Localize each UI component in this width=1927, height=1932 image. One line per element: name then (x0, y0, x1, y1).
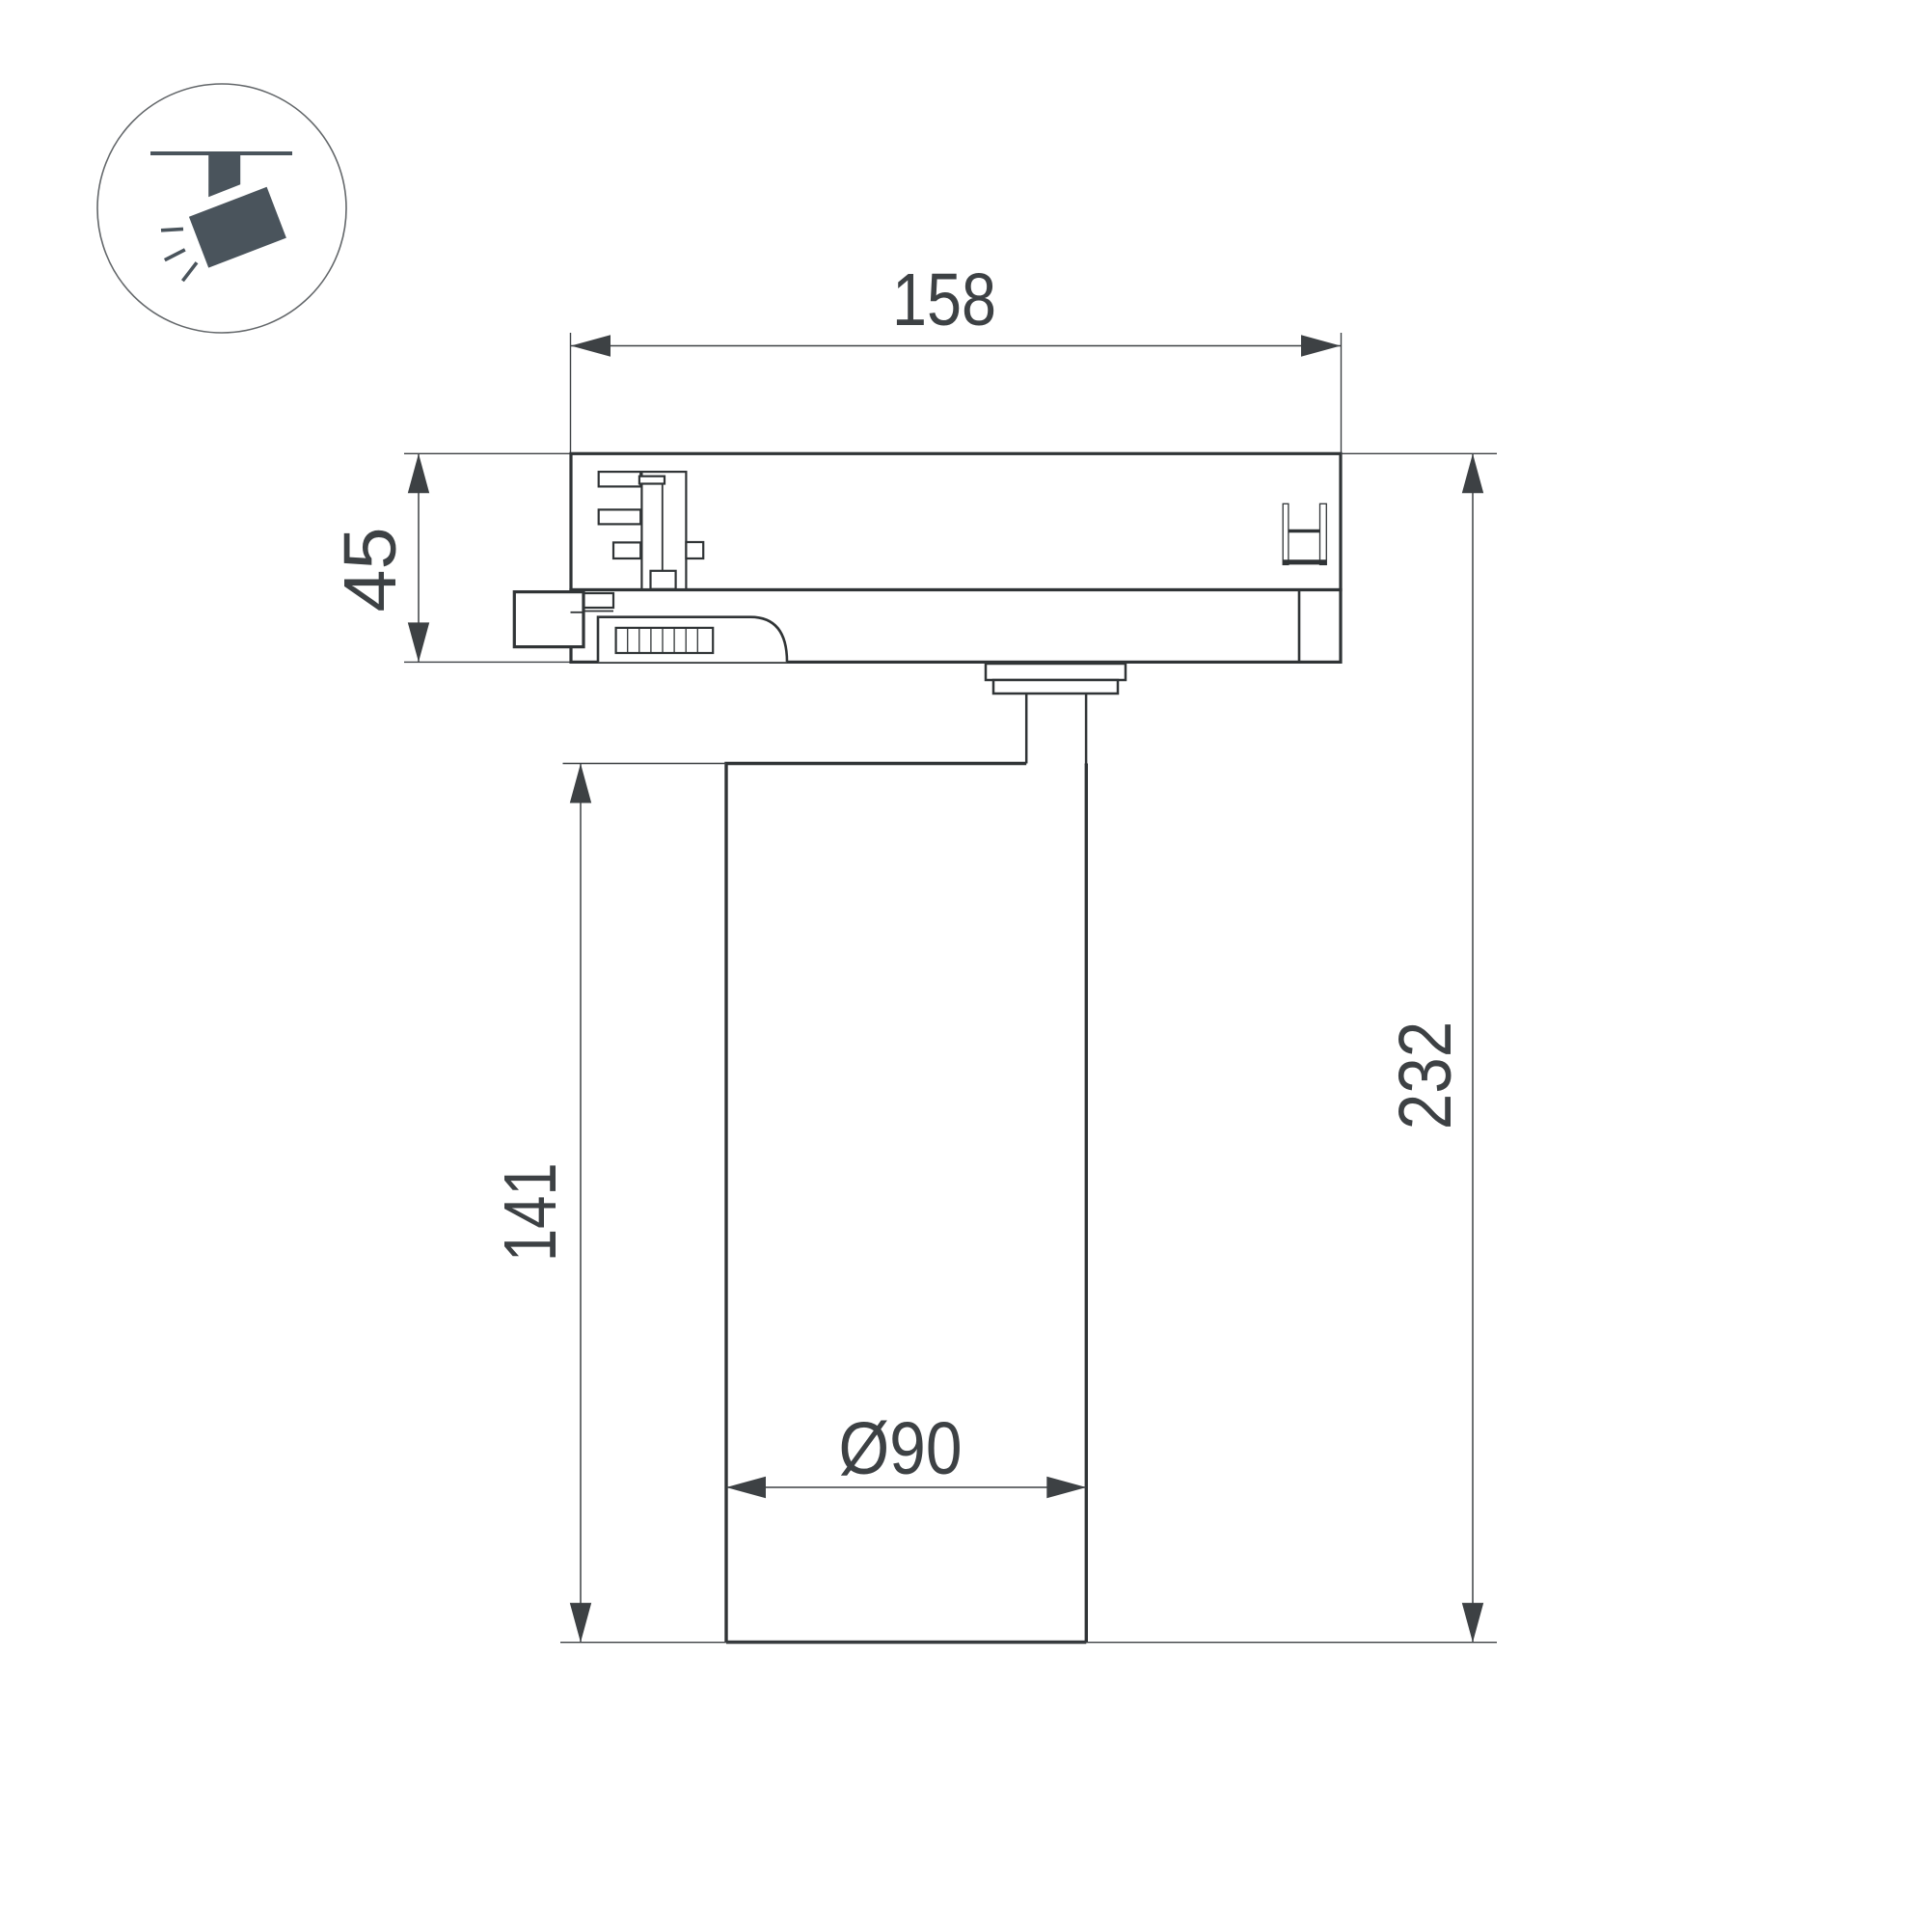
svg-text:232: 232 (1385, 1021, 1467, 1129)
svg-text:Ø90: Ø90 (838, 1407, 962, 1490)
svg-text:141: 141 (488, 1162, 571, 1262)
svg-text:158: 158 (892, 259, 996, 342)
svg-text:45: 45 (328, 527, 412, 612)
